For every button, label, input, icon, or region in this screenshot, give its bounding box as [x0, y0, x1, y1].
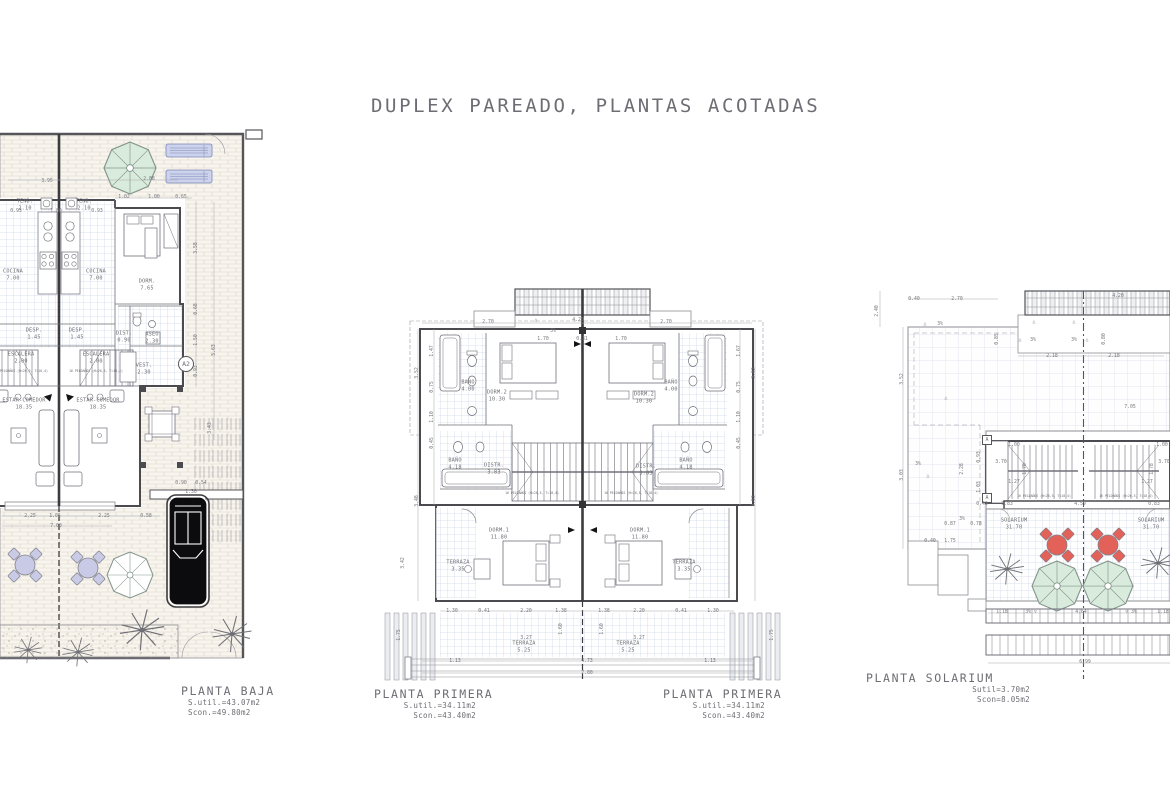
- dimension-label: 3.42: [401, 557, 407, 569]
- dimension-label: 0.75: [430, 381, 436, 393]
- dimension-label: △: [927, 474, 930, 480]
- plan-planta-primera: BAÑO 4.00DORM.2 10.30DISTR. 3.83BAÑO 4.1…: [378, 283, 796, 693]
- dimension-label: 3.48: [415, 495, 421, 507]
- room-label: DESP. 1.45: [69, 327, 86, 341]
- room-label: BAÑO 4.00: [664, 379, 677, 393]
- caption-planta-solarium: PLANTA SOLARIUM Sutil=3.70m2 Scon=8.05m2: [866, 671, 1034, 705]
- dimension-label: 4.20: [572, 318, 584, 324]
- section-marker: A: [982, 493, 992, 503]
- stair-note: 16 PELDAÑOS (H=26,5, T=18,4): [69, 369, 123, 373]
- dimension-label: 6.99: [1079, 660, 1091, 666]
- room-label: DORM. 7.65: [139, 278, 156, 292]
- caption-planta-baja: PLANTA BAJA S.util.=43.07m2 Scon.=49.80m…: [181, 684, 275, 718]
- plan-area-con: Scon.=43.40m2: [663, 711, 765, 721]
- stair-note: 16 PELDAÑOS (H=26,5, T=18,4): [505, 491, 559, 495]
- dimension-label: 2.70: [660, 320, 672, 326]
- plan-baja-labels: TEND. 2.10TEND. 2.10COCINA 7.00COCINA 7.…: [0, 128, 266, 690]
- room-label: COCINA 7.00: [3, 268, 23, 282]
- dimension-label: 1.75: [397, 629, 403, 641]
- dimension-label: 3%: [915, 462, 921, 468]
- room-label: TERRAZA 3.35: [446, 559, 469, 573]
- dimension-label: 3.52: [752, 367, 758, 379]
- dimension-label: 1.00: [148, 195, 160, 201]
- dimension-label: 1.70: [537, 337, 549, 343]
- dimension-label: 1.67: [737, 345, 743, 357]
- dimension-label: 0.90: [175, 481, 187, 487]
- dimension-label: 0.78: [970, 522, 982, 528]
- dimension-label: 3.70: [995, 460, 1007, 466]
- plan-name: PLANTA SOLARIUM: [866, 671, 1034, 685]
- dimension-label: 0.85: [995, 333, 1001, 345]
- stair-note: 16 PELDAÑOS (H=26,5, T=18,4): [1017, 494, 1071, 498]
- dimension-label: 0.54: [195, 481, 207, 487]
- dimension-label: 1.10: [430, 411, 436, 423]
- dimension-label: △: [1033, 320, 1036, 326]
- dimension-label: 0.83: [1148, 502, 1160, 508]
- plan-area-con: Scon.=49.80m2: [188, 708, 275, 718]
- dimension-label: 3%: [1030, 338, 1036, 344]
- dimension-label: 3.52: [900, 373, 906, 385]
- dimension-label: 3.03: [900, 469, 906, 481]
- dimension-label: 1.60: [600, 623, 606, 635]
- dimension-label: 1.27: [1141, 480, 1153, 486]
- dimension-label: 3%: [937, 322, 943, 328]
- room-label: ESCALERA 2.00: [83, 351, 110, 365]
- room-label: TERRAZA 5.25: [616, 640, 639, 654]
- room-label: DISTR. 3.83: [636, 463, 656, 477]
- section-marker: A2: [178, 356, 194, 372]
- dimension-label: 3%: [959, 517, 965, 523]
- dimension-label: 0.40: [924, 539, 936, 545]
- room-label: TERRAZA 5.25: [512, 640, 535, 654]
- room-label: DORM.1 11.80: [489, 527, 509, 541]
- dimension-label: 0.58: [140, 514, 152, 520]
- stair-note: 16 PELDAÑOS (H=26,5, T=18,4): [1099, 494, 1153, 498]
- plan-planta-solarium: SOLARIUM 31.70SOLARIUM 31.70AA16 PELDAÑO…: [868, 283, 1170, 683]
- dimension-label: 4.59: [1074, 502, 1086, 508]
- dimension-label: 7.00: [581, 671, 593, 677]
- dimension-label: 0.93: [10, 209, 22, 215]
- dimension-label: 1.18: [1157, 610, 1169, 616]
- dimension-label: 2.70: [482, 320, 494, 326]
- dimension-label: 3.53: [752, 495, 758, 507]
- dimension-label: 1.47: [430, 345, 436, 357]
- dimension-label: 1.75: [944, 539, 956, 545]
- dimension-label: 1.13: [704, 659, 716, 665]
- dimension-label: 1.00: [1008, 443, 1020, 449]
- room-label: SOLARIUM 31.70: [1001, 517, 1028, 531]
- dimension-label: 2.88: [143, 177, 155, 183]
- room-label: DISTR. 3.83: [484, 462, 504, 476]
- dimension-label: 2.25: [98, 514, 110, 520]
- plan-name: PLANTA PRIMERA: [663, 687, 765, 701]
- dimension-label: 1.78: [1150, 463, 1156, 475]
- dimension-label: 1.18: [996, 610, 1008, 616]
- dimension-label: 7.00: [50, 524, 62, 530]
- plan-area-util: S.util.=34.11m2: [663, 701, 765, 711]
- dimension-label: 3.58: [194, 242, 200, 254]
- dimension-label: 5.63: [212, 344, 218, 356]
- room-label: ESTAR-COMEDOR 18.35: [76, 397, 119, 411]
- dimension-label: △: [535, 318, 538, 324]
- dimension-label: 0.41: [675, 609, 687, 615]
- plan-area-con: Scon=8.05m2: [866, 695, 1034, 705]
- room-label: DORM.1 11.80: [630, 527, 650, 541]
- dimension-label: 3.27: [633, 636, 645, 642]
- dimension-label: 1.80: [50, 209, 62, 215]
- dimension-label: 3%: [1071, 338, 1077, 344]
- drawing-title: DUPLEX PAREADO, PLANTAS ACOTADAS: [371, 95, 820, 117]
- dimension-label: 1.00: [1156, 443, 1168, 449]
- dimension-label: 2.20: [520, 609, 532, 615]
- dimension-label: 2.20: [633, 609, 645, 615]
- dimension-label: 2.18: [1108, 354, 1120, 360]
- dimension-label: 2.40: [875, 305, 881, 317]
- dimension-label: 4.64: [1075, 610, 1087, 616]
- dimension-label: 1.30: [707, 609, 719, 615]
- room-label: DORM.2 10.30: [634, 391, 654, 405]
- dimension-label: 1.50: [194, 334, 200, 346]
- dimension-label: 0.65: [175, 195, 187, 201]
- dimension-label: 1.70: [615, 337, 627, 343]
- dimension-label: △: [1019, 338, 1022, 344]
- dimension-label: 3.95: [41, 179, 53, 185]
- section-marker: A: [982, 435, 992, 445]
- plan-solarium-labels: SOLARIUM 31.70SOLARIUM 31.70AA16 PELDAÑO…: [868, 283, 1170, 683]
- room-label: BAÑO 4.18: [679, 457, 692, 471]
- dimension-label: 1.30: [185, 490, 197, 496]
- room-label: SOLARIUM 31.70: [1138, 517, 1165, 531]
- room-label: BAÑO 4.18: [448, 457, 461, 471]
- dimension-label: 0.75: [737, 381, 743, 393]
- dimension-label: △: [1086, 338, 1089, 344]
- dimension-label: 0.93: [91, 209, 103, 215]
- dimension-label: 4.20: [1112, 294, 1124, 300]
- dimension-label: 0.45: [737, 437, 743, 449]
- plan-area-util: S.util.=43.07m2: [188, 698, 275, 708]
- plan-name: PLANTA PRIMERA: [374, 687, 476, 701]
- dimension-label: 1.75: [770, 629, 776, 641]
- room-label: TERRAZA 3.35: [672, 559, 695, 573]
- dimension-label: 0.93: [194, 365, 200, 377]
- dimension-label: 1.30: [446, 609, 458, 615]
- dimension-label: 3% ▽: [1025, 610, 1037, 616]
- dimension-label: 1.10: [737, 411, 743, 423]
- dimension-label: 0.31: [576, 337, 588, 343]
- dimension-label: 1.05: [49, 514, 61, 520]
- dimension-label: 2.28: [960, 463, 966, 475]
- dimension-label: 1.38: [555, 609, 567, 615]
- plan-planta-baja: TEND. 2.10TEND. 2.10COCINA 7.00COCINA 7.…: [0, 128, 266, 690]
- stair-note: 16 PELDAÑOS (H=26,5, T=18,4): [604, 491, 658, 495]
- room-label: ASEO 2.30: [145, 331, 158, 345]
- room-label: TEND. 2.10: [76, 198, 93, 212]
- dimension-label: 0.93: [977, 451, 983, 463]
- room-label: TEND. 2.10: [17, 198, 34, 212]
- dimension-label: 0.40: [908, 297, 920, 303]
- dimension-label: 1.03: [977, 481, 983, 493]
- dimension-label: 0.43: [976, 502, 988, 508]
- stair-note: 16 PELDAÑOS (H=26,5, T=18,4): [0, 369, 48, 373]
- dimension-label: 0.68: [194, 303, 200, 315]
- room-label: ESCALERA 2.00: [8, 351, 35, 365]
- dimension-label: 3.70: [1158, 460, 1170, 466]
- room-label: DORM.2 10.30: [487, 389, 507, 403]
- dimension-label: 4.73: [581, 659, 593, 665]
- dimension-label: 2.18: [1046, 354, 1058, 360]
- dimension-label: 0.83: [1001, 502, 1013, 508]
- plan-primera-labels: BAÑO 4.00DORM.2 10.30DISTR. 3.83BAÑO 4.1…: [378, 283, 796, 693]
- dimension-label: 3.52: [415, 367, 421, 379]
- dimension-label: △: [945, 396, 948, 402]
- room-label: COCINA 7.00: [86, 268, 106, 282]
- dimension-label: 1.60: [559, 623, 565, 635]
- room-label: BAÑO 4.00: [461, 379, 474, 393]
- room-label: DESP. 1.45: [26, 327, 43, 341]
- caption-planta-primera-right: PLANTA PRIMERA S.util.=34.11m2 Scon.=43.…: [663, 687, 765, 721]
- dimension-label: 3.27: [520, 636, 532, 642]
- room-label: DIST. 0.90: [116, 330, 133, 344]
- dimension-label: 3.43: [208, 422, 214, 434]
- dimension-label: 2.25: [24, 514, 36, 520]
- plan-area-util: S.util.=34.11m2: [374, 701, 476, 711]
- caption-planta-primera-left: PLANTA PRIMERA S.util.=34.11m2 Scon.=43.…: [374, 687, 476, 721]
- dimension-label: 0.41: [478, 609, 490, 615]
- dimension-label: 1.78: [1023, 463, 1029, 475]
- plan-name: PLANTA BAJA: [181, 684, 275, 698]
- dimension-label: 0.45: [430, 437, 436, 449]
- room-label: ESTAR-COMEDOR 18.35: [2, 397, 45, 411]
- drawing-sheet: { "title": "DUPLEX PAREADO, PLANTAS ACOT…: [0, 0, 1170, 785]
- dimension-label: 7.05: [1124, 405, 1136, 411]
- dimension-label: ▽ 3%: [1125, 610, 1137, 616]
- plan-area-util: Sutil=3.70m2: [866, 685, 1034, 695]
- room-label: VEST. 2.30: [136, 362, 153, 376]
- dimension-label: 0.87: [944, 522, 956, 528]
- dimension-label: △: [1073, 320, 1076, 326]
- dimension-label: 2.70: [951, 297, 963, 303]
- dimension-label: 0.80: [1102, 333, 1108, 345]
- dimension-label: △: [924, 322, 927, 328]
- dimension-label: 1.27: [1008, 480, 1020, 486]
- plan-area-con: Scon.=43.40m2: [374, 711, 476, 721]
- dimension-label: 1.13: [449, 659, 461, 665]
- dimension-label: 1.02: [118, 195, 130, 201]
- dimension-label: 1.38: [598, 609, 610, 615]
- dimension-label: 3%: [550, 329, 556, 335]
